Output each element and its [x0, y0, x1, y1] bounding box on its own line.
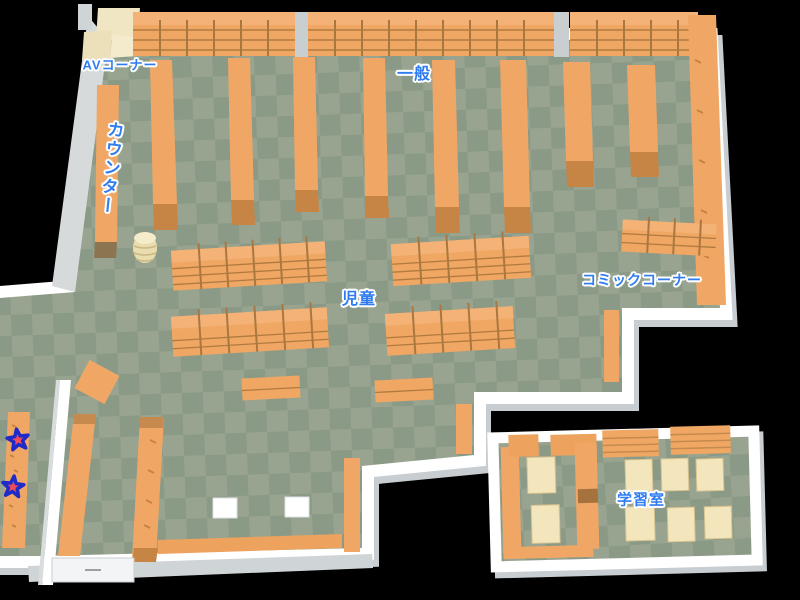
bookshelf — [508, 434, 539, 457]
wall-bookshelf — [501, 447, 522, 555]
area-label-comic-corner: コミックコーナー — [582, 270, 702, 290]
bookshelf — [293, 57, 319, 212]
entrance-door[interactable] — [52, 558, 134, 582]
wall-bookshelf — [604, 310, 619, 382]
library-floor-map: AVコーナー カウンター 一般 児童 コミックコーナー 学習室 — [0, 0, 800, 600]
white-box — [285, 497, 309, 517]
bookshelf — [500, 60, 531, 233]
area-label-general: 一般 — [397, 60, 431, 84]
bookshelf — [627, 65, 659, 177]
wall-post — [78, 4, 92, 30]
wall-bookshelf — [344, 458, 360, 552]
basket — [133, 232, 157, 263]
table — [696, 458, 724, 491]
bookshelf-row — [670, 425, 731, 455]
table — [625, 506, 655, 541]
low-shelf — [374, 377, 433, 402]
bookshelf — [363, 58, 389, 218]
wall-gap — [554, 12, 569, 57]
divider-bookshelf — [575, 443, 600, 550]
bookshelf-row — [308, 12, 554, 56]
wall-gap — [295, 12, 308, 57]
av-corner-shelves — [78, 4, 140, 60]
table — [661, 458, 689, 491]
bookshelf-row — [133, 12, 295, 56]
wall-bookshelf — [456, 404, 472, 454]
area-label-children: 児童 — [342, 285, 376, 309]
table — [625, 459, 653, 492]
floor-map-svg — [0, 0, 800, 600]
table — [527, 457, 556, 494]
top-wall-shelves — [78, 4, 698, 60]
white-box — [213, 498, 237, 518]
area-label-av-corner: AVコーナー — [82, 55, 157, 74]
table — [531, 505, 560, 544]
table — [704, 506, 732, 539]
low-shelf — [241, 375, 300, 400]
bookshelf-row — [570, 12, 698, 56]
bookshelf-row — [602, 429, 659, 457]
table — [667, 507, 695, 542]
area-label-study-room: 学習室 — [617, 489, 665, 510]
bookshelf — [563, 62, 594, 187]
